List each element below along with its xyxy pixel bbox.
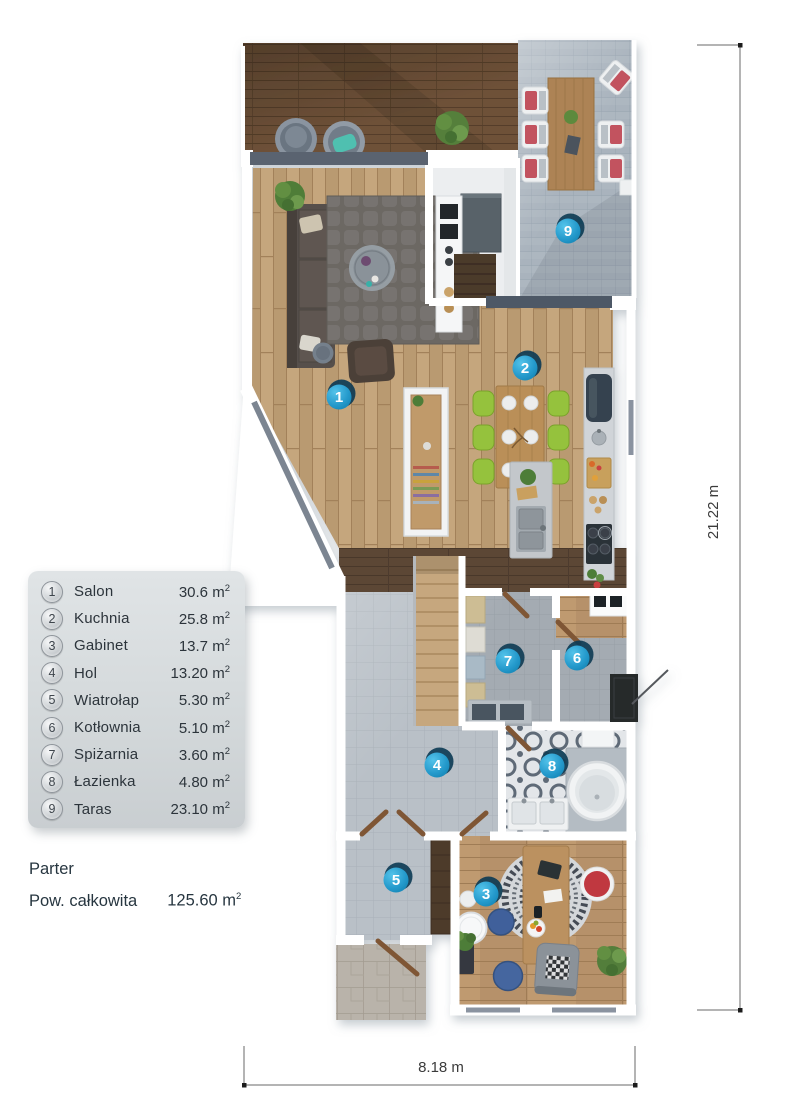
- terrace-chairs-left: [522, 87, 548, 182]
- legend-room-name: Kuchnia: [74, 610, 130, 627]
- total-area-row: Pow. całkowita 125.60 m2: [29, 891, 241, 911]
- legend-room-name: Gabinet: [74, 637, 128, 654]
- kitchen-counter: [584, 368, 614, 589]
- dimension-vertical-label: 21.22 m: [705, 485, 722, 539]
- legend-room-area: 30.6 m2: [179, 583, 230, 601]
- floor-plan-page: 123456789 21.22 m 8.18 m 1Salon30.6 m22K…: [0, 0, 800, 1100]
- legend-room-name: Hol: [74, 665, 97, 682]
- vestibule-tile-floor: [341, 836, 430, 940]
- entrance-stone-path: [336, 944, 426, 1020]
- bathtub: [566, 748, 630, 836]
- legend-room-area: 5.30 m2: [179, 691, 230, 709]
- legend-room-area: 25.8 m2: [179, 610, 230, 628]
- office-gray-chair: [534, 943, 579, 997]
- blue-stool-1: [488, 909, 514, 935]
- room-legend: 1Salon30.6 m22Kuchnia25.8 m23Gabinet13.7…: [28, 571, 245, 828]
- svg-text:1: 1: [335, 389, 343, 406]
- armchair: [347, 338, 396, 383]
- legend-row: 3Gabinet13.7 m2: [28, 632, 245, 659]
- legend-row: 4Hol13.20 m2: [28, 660, 245, 687]
- office-red-chair: [580, 867, 614, 901]
- firewood-crate: [454, 254, 496, 302]
- legend-room-name: Taras: [74, 801, 112, 818]
- coffee-table: [349, 245, 395, 291]
- legend-number-badge: 4: [41, 662, 63, 684]
- terrace-sliding-door: [486, 296, 612, 308]
- legend-number-badge: 7: [41, 744, 63, 766]
- boiler-room-counter: [590, 594, 630, 616]
- bathroom-shelf: [582, 730, 614, 747]
- legend-room-name: Salon: [74, 583, 113, 600]
- floor-label: Parter: [29, 860, 74, 879]
- svg-text:4: 4: [433, 757, 442, 774]
- blue-stool-2: [494, 962, 523, 991]
- legend-room-area: 13.7 m2: [179, 637, 230, 655]
- dimension-horizontal-label: 8.18 m: [418, 1059, 464, 1076]
- legend-number-badge: 9: [41, 798, 63, 820]
- double-sink-vanity: [508, 798, 568, 830]
- staircase: [413, 556, 463, 726]
- kitchen-island: [510, 462, 552, 558]
- annex-top-wall: [426, 150, 518, 168]
- legend-row: 1Salon30.6 m2: [28, 578, 245, 605]
- legend-number-badge: 1: [41, 581, 63, 603]
- legend-room-name: Kotłownia: [74, 719, 141, 736]
- living-room-plant: [275, 181, 305, 211]
- sideboard: [404, 388, 448, 536]
- legend-room-area: 5.10 m2: [179, 719, 230, 737]
- legend-row: 9Taras23.10 m2: [28, 796, 245, 823]
- office-plant: [597, 946, 627, 976]
- legend-room-area: 13.20 m2: [170, 664, 230, 682]
- legend-row: 7Spiżarnia3.60 m2: [28, 741, 245, 768]
- svg-text:6: 6: [573, 650, 581, 667]
- svg-text:9: 9: [564, 223, 572, 240]
- legend-room-area: 4.80 m2: [179, 773, 230, 791]
- floor-plan-drawing: 123456789 21.22 m 8.18 m: [0, 0, 800, 1100]
- legend-number-badge: 5: [41, 689, 63, 711]
- legend-row: 2Kuchnia25.8 m2: [28, 605, 245, 632]
- legend-row: 8Łazienka4.80 m2: [28, 768, 245, 795]
- svg-text:2: 2: [521, 360, 529, 377]
- legend-room-area: 23.10 m2: [170, 800, 230, 818]
- legend-row: 6Kotłownia5.10 m2: [28, 714, 245, 741]
- legend-number-badge: 3: [41, 635, 63, 657]
- svg-text:7: 7: [504, 653, 512, 670]
- deck-sliding-door: [250, 152, 428, 165]
- deck-plant: [435, 111, 469, 145]
- terrace-dining-table: [548, 78, 594, 190]
- legend-rows: 1Salon30.6 m22Kuchnia25.8 m23Gabinet13.7…: [28, 578, 245, 823]
- legend-room-name: Wiatrołap: [74, 692, 139, 709]
- legend-room-name: Łazienka: [74, 773, 136, 790]
- legend-room-area: 3.60 m2: [179, 746, 230, 764]
- legend-number-badge: 6: [41, 717, 63, 739]
- svg-text:8: 8: [548, 758, 556, 775]
- total-area-label: Pow. całkowita: [29, 892, 137, 911]
- legend-room-name: Spiżarnia: [74, 746, 138, 763]
- total-area-value: 125.60 m2: [167, 891, 241, 911]
- pouf: [313, 343, 334, 364]
- chimney: [610, 670, 668, 722]
- svg-text:5: 5: [392, 872, 400, 889]
- legend-row: 5Wiatrołap5.30 m2: [28, 687, 245, 714]
- legend-number-badge: 2: [41, 608, 63, 630]
- legend-number-badge: 8: [41, 771, 63, 793]
- svg-text:3: 3: [482, 886, 490, 903]
